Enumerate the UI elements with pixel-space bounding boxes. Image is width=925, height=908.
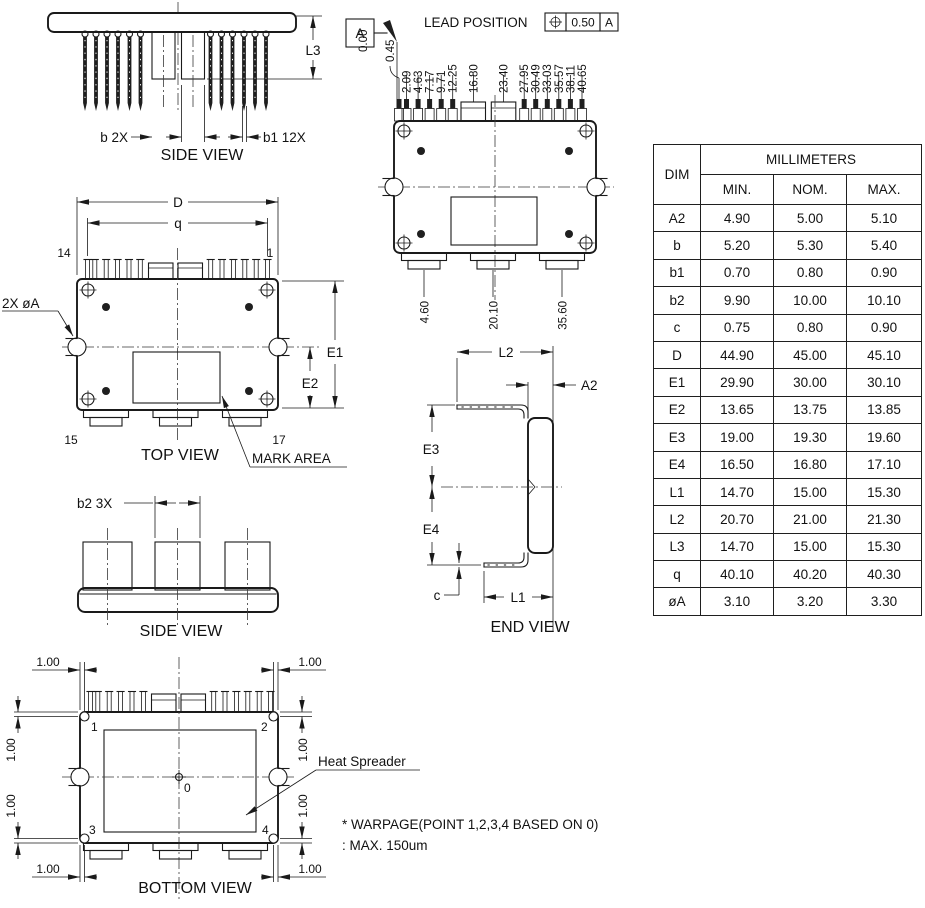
corner-dim-br-v: 1.00 [296,794,310,818]
table-row: E129.9030.0030.10 [654,369,922,396]
table-cell: 5.40 [847,232,922,259]
table-cell: 17.10 [847,451,922,478]
table-row: E213.6513.7513.85 [654,396,922,423]
table-cell: 40.20 [774,561,847,588]
table-cell: 30.00 [774,369,847,396]
table-cell: L2 [654,506,701,533]
lead-pos-11: 33.03 [542,64,554,93]
side-view-bottom-caption: SIDE VIEW [140,623,224,640]
dim-l2-label: L2 [498,345,513,360]
table-cell: 9.90 [701,287,774,314]
table-header-nom: NOM. [774,175,847,205]
table-cell: b1 [654,259,701,286]
table-cell: b [654,232,701,259]
bottom-view-caption: BOTTOM VIEW [138,880,252,897]
lead-pos-9: 27.95 [519,64,531,93]
table-cell: 5.30 [774,232,847,259]
corner-dim-bl-v: 1.00 [4,794,18,818]
pin-17-label: 17 [272,433,286,447]
table-cell: 40.30 [847,561,922,588]
fcf-tolerance: 0.50 [571,16,595,30]
table-cell: 20.70 [701,506,774,533]
table-cell: 3.10 [701,588,774,615]
table-cell: 15.00 [774,533,847,560]
table-cell: b2 [654,287,701,314]
table-cell: 5.10 [847,205,922,232]
lead-pos-7: 16.80 [469,64,481,93]
dim-a2-label: A2 [581,378,598,393]
pin-1-label: 1 [267,246,274,260]
table-row: E319.0019.3019.60 [654,424,922,451]
top-view-caption: TOP VIEW [141,447,220,464]
table-cell: 29.90 [701,369,774,396]
table-cell: E4 [654,451,701,478]
table-cell: 16.50 [701,451,774,478]
lead-pos-4: 7.17 [425,71,437,93]
lead-pos-5: 9.71 [436,71,448,93]
side-view-bottom: b2 3X SIDE VIEW [77,496,278,640]
lead-pos-13: 38.11 [566,65,578,93]
table-cell: 19.00 [701,424,774,451]
package-outline-drawing: L3 b 2X b1 12X SIDE VIEW A LEAD POSITION [0,0,925,908]
table-cell: 45.00 [774,341,847,368]
datum-triangle-icon [383,20,397,42]
table-cell: L3 [654,533,701,560]
table-row: L314.7015.0015.30 [654,533,922,560]
table-cell: 10.00 [774,287,847,314]
table-cell: 13.75 [774,396,847,423]
table-cell: 40.10 [701,561,774,588]
table-row: b5.205.305.40 [654,232,922,259]
corner-dim-bl-h: 1.00 [36,862,60,876]
dim-c-label: c [434,588,441,603]
point-0-label: 0 [184,781,191,795]
table-header-row: DIM MILLIMETERS [654,145,922,175]
corner-dim-br-h: 1.00 [298,862,322,876]
bottom-view: 1 2 3 4 0 1.00 1.00 1.00 1.00 [4,655,598,899]
point-3-label: 3 [89,823,96,837]
table-cell: 14.70 [701,478,774,505]
dim-b2-label: b2 3X [77,496,112,511]
corner-dim-tr-h: 1.00 [298,655,322,669]
table-cell: 10.10 [847,287,922,314]
lead-position-title: LEAD POSITION [424,15,528,30]
table-header-min: MIN. [701,175,774,205]
table-cell: 21.30 [847,506,922,533]
table-cell: L1 [654,478,701,505]
dim-e1-label: E1 [327,345,344,360]
tab-pos-1: 20.10 [489,301,501,330]
pin-15-label: 15 [64,433,78,447]
table-cell: 21.00 [774,506,847,533]
dim-d-label: D [173,195,183,210]
top-view: D q 14 1 2X øA [2,195,347,467]
table-cell: 0.90 [847,259,922,286]
corner-dim-tl-v: 1.00 [4,738,18,762]
table-cell: E3 [654,424,701,451]
table-cell: D [654,341,701,368]
tab-pos-2: 35.60 [558,301,570,330]
table-cell: 4.90 [701,205,774,232]
lead-pos-3: 4.63 [413,71,425,93]
table-row: E416.5016.8017.10 [654,451,922,478]
dim-e2-label: E2 [302,376,319,391]
table-row: A24.905.005.10 [654,205,922,232]
lead-pos-12: 35.57 [554,64,566,93]
table-row: L220.7021.0021.30 [654,506,922,533]
hole-callout-label: 2X øA [2,296,40,311]
table-cell: 0.70 [701,259,774,286]
side-view-top-caption: SIDE VIEW [161,147,245,164]
table-cell: 16.80 [774,451,847,478]
table-cell: øA [654,588,701,615]
lead-pos-8: 23.40 [499,64,511,93]
warpage-note-line2: : MAX. 150um [342,838,428,853]
table-cell: 13.65 [701,396,774,423]
lead-pos-2: 2.09 [402,71,414,93]
dim-b1-label: b1 12X [263,130,306,145]
table-row: L114.7015.0015.30 [654,478,922,505]
table-cell: 15.30 [847,478,922,505]
lead-pos-0: 0.00 [358,30,370,52]
table-cell: 0.80 [774,314,847,341]
table-cell: 0.80 [774,259,847,286]
lead-position-view: A LEAD POSITION 0.50 A 0.00 0.45 2.09 4.… [346,13,618,330]
table-header-units: MILLIMETERS [701,145,922,175]
table-cell: E2 [654,396,701,423]
dim-e3-label: E3 [423,442,440,457]
point-2-label: 2 [261,720,268,734]
table-cell: 5.20 [701,232,774,259]
dim-q-label: q [174,216,182,231]
dim-e4-label: E4 [423,522,440,537]
side-view-top: L3 b 2X b1 12X SIDE VIEW [48,2,322,164]
table-cell: 15.30 [847,533,922,560]
table-cell: 15.00 [774,478,847,505]
table-row: D44.9045.0045.10 [654,341,922,368]
dimension-table: DIM MILLIMETERS MIN. NOM. MAX. A24.905.0… [653,144,922,616]
true-position-icon [549,16,562,29]
table-cell: 19.60 [847,424,922,451]
dim-l3-label: L3 [305,43,320,58]
lead-pos-6: 12.25 [448,64,460,93]
table-row: øA3.103.203.30 [654,588,922,615]
table-row: q40.1040.2040.30 [654,561,922,588]
corner-dim-tl-h: 1.00 [36,655,60,669]
warpage-note-line1: * WARPAGE(POINT 1,2,3,4 BASED ON 0) [342,817,598,832]
table-cell: 0.75 [701,314,774,341]
lead-pos-1: 0.45 [385,40,397,62]
point-4-label: 4 [262,823,269,837]
table-cell: A2 [654,205,701,232]
fcf-datum: A [605,16,613,30]
tab-pos-0: 4.60 [420,301,432,323]
table-row: b29.9010.0010.10 [654,287,922,314]
table-cell: 0.90 [847,314,922,341]
table-cell: 44.90 [701,341,774,368]
pin-14-label: 14 [57,246,71,260]
dim-l1-label: L1 [510,590,525,605]
corner-dim-tr-v: 1.00 [296,738,310,762]
table-cell: E1 [654,369,701,396]
mark-area-label: MARK AREA [252,451,331,466]
table-header-max: MAX. [847,175,922,205]
table-cell: 45.10 [847,341,922,368]
heat-spreader-label: Heat Spreader [318,754,406,769]
feature-control-frame: 0.50 A [545,13,618,31]
table-cell: c [654,314,701,341]
end-view: L2 A2 E3 E4 c L1 END [423,345,598,636]
table-row: b10.700.800.90 [654,259,922,286]
table-cell: 13.85 [847,396,922,423]
point-1-label: 1 [91,720,98,734]
lead-pos-10: 30.49 [531,64,543,93]
table-cell: q [654,561,701,588]
table-header-dim: DIM [654,145,701,205]
dim-b-label: b 2X [100,130,128,145]
table-cell: 3.20 [774,588,847,615]
table-cell: 14.70 [701,533,774,560]
table-cell: 19.30 [774,424,847,451]
table-cell: 5.00 [774,205,847,232]
table-cell: 3.30 [847,588,922,615]
lead-pos-14: 40.65 [577,64,589,93]
end-view-caption: END VIEW [490,619,570,636]
table-cell: 30.10 [847,369,922,396]
table-row: c0.750.800.90 [654,314,922,341]
